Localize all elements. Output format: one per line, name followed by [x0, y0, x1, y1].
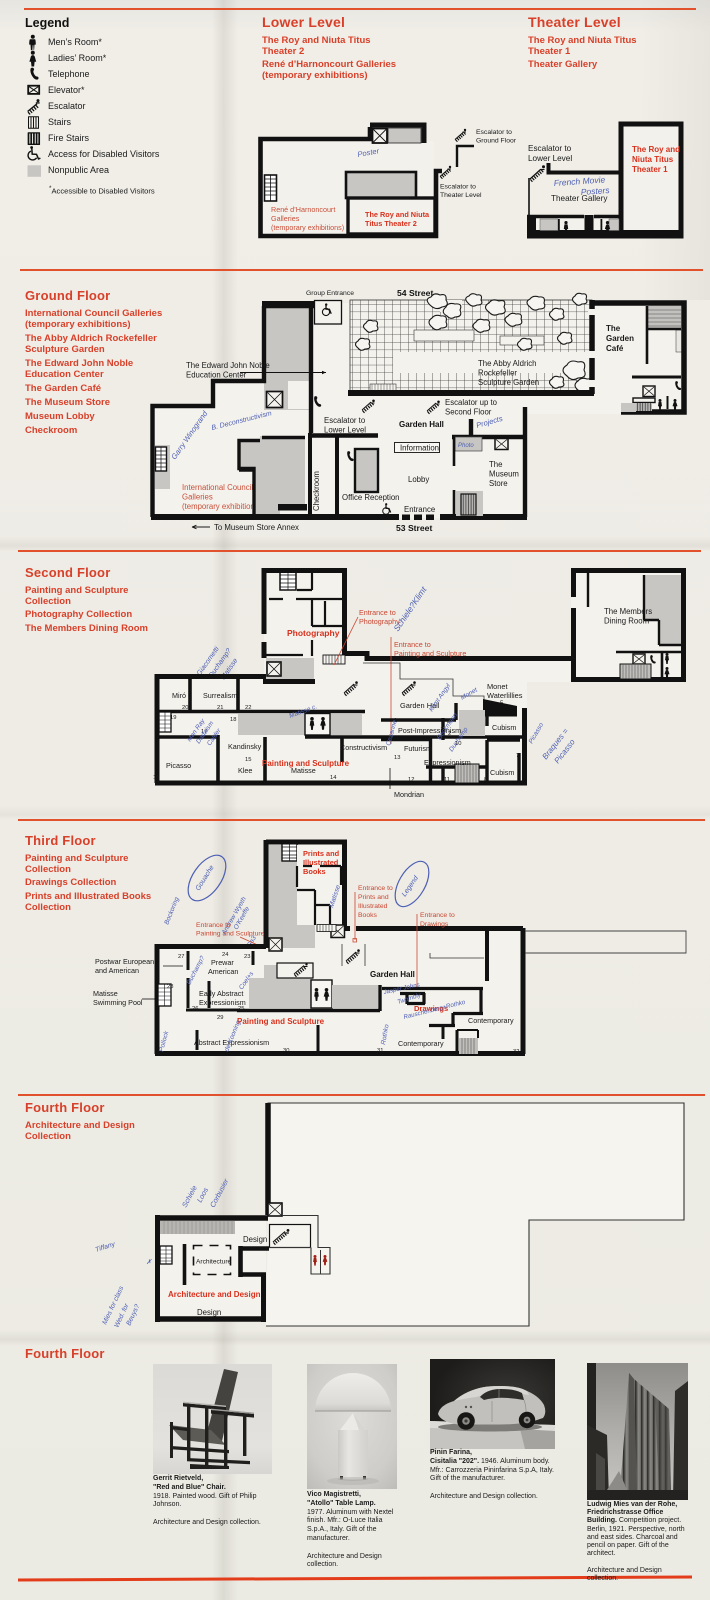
svg-text:Post-Impressionism: Post-Impressionism	[398, 726, 461, 735]
svg-text:Kandinsky: Kandinsky	[228, 742, 262, 751]
svg-text:Lobby: Lobby	[408, 475, 429, 484]
svg-text:Cubism: Cubism	[492, 723, 516, 732]
svg-text:Mondrian: Mondrian	[394, 790, 424, 799]
svg-text:Contemporary: Contemporary	[468, 1016, 514, 1025]
svg-text:23: 23	[244, 954, 250, 960]
svg-text:32: 32	[513, 1049, 519, 1055]
svg-text:Swimming Pool: Swimming Pool	[93, 998, 143, 1007]
svg-text:Rockefeller: Rockefeller	[478, 369, 517, 378]
svg-text:Galleries: Galleries	[271, 214, 300, 223]
svg-text:Books: Books	[303, 867, 326, 876]
svg-text:Escalator to: Escalator to	[528, 144, 572, 153]
svg-text:21: 21	[217, 705, 223, 711]
svg-text:Architecture: Architecture	[196, 1259, 232, 1266]
svg-text:Prints and: Prints and	[358, 894, 389, 901]
svg-text:René d’Harnoncourt: René d’Harnoncourt	[271, 205, 335, 214]
svg-text:International Council: International Council	[182, 483, 253, 492]
svg-text:Picasso: Picasso	[528, 721, 546, 745]
svg-text:24: 24	[222, 952, 229, 958]
svg-text:The Members: The Members	[604, 607, 652, 616]
svg-text:Monet: Monet	[487, 682, 508, 691]
svg-text:(temporary exhibitions): (temporary exhibitions)	[271, 223, 344, 232]
svg-text:15: 15	[245, 757, 251, 763]
svg-text:14: 14	[330, 775, 337, 781]
svg-text:26: 26	[192, 1006, 198, 1012]
svg-text:12: 12	[408, 777, 414, 783]
svg-text:18: 18	[230, 717, 236, 723]
svg-text:Posters: Posters	[580, 185, 610, 197]
svg-text:Group Entrance: Group Entrance	[306, 290, 354, 297]
svg-text:28: 28	[167, 984, 173, 990]
svg-text:Picasso: Picasso	[166, 761, 191, 770]
svg-text:Information: Information	[400, 444, 439, 453]
svg-text:Garden: Garden	[606, 334, 634, 343]
svg-text:25: 25	[238, 1006, 244, 1012]
svg-text:Niuta Titus: Niuta Titus	[632, 155, 674, 164]
svg-text:Museum: Museum	[489, 470, 519, 479]
svg-text:Early Abstract: Early Abstract	[199, 989, 243, 998]
svg-text:Surrealism: Surrealism	[203, 691, 237, 700]
svg-text:Contemporary: Contemporary	[398, 1039, 444, 1048]
svg-text:Painting and Sculpture: Painting and Sculpture	[262, 759, 350, 768]
svg-text:Theater 1: Theater 1	[632, 165, 668, 174]
svg-text:Design: Design	[197, 1308, 221, 1317]
svg-text:Escalator to: Escalator to	[440, 184, 476, 191]
svg-text:Escalator to: Escalator to	[476, 129, 512, 136]
svg-text:Design: Design	[243, 1235, 267, 1244]
svg-text:Galleries: Galleries	[182, 493, 213, 502]
svg-text:Checkroom: Checkroom	[312, 471, 321, 511]
svg-text:Lower Level: Lower Level	[528, 154, 572, 163]
svg-text:Prewar: Prewar	[211, 958, 234, 967]
svg-text:Theater Level: Theater Level	[440, 192, 482, 199]
svg-text:29: 29	[217, 1015, 223, 1021]
svg-text:Books: Books	[358, 912, 377, 919]
svg-text:16: 16	[153, 775, 159, 781]
svg-text:54 Street: 54 Street	[397, 288, 433, 298]
svg-text:Futurism: Futurism	[404, 744, 432, 753]
svg-text:Garden Hall: Garden Hall	[370, 970, 415, 979]
svg-text:8: 8	[484, 777, 487, 783]
svg-text:The: The	[606, 324, 621, 333]
svg-text:Miró: Miró	[172, 691, 186, 700]
svg-text:20: 20	[182, 705, 188, 711]
svg-text:The Abby Aldrich: The Abby Aldrich	[478, 359, 537, 368]
svg-text:2: 2	[448, 731, 451, 737]
svg-text:Entrance to: Entrance to	[420, 912, 455, 919]
svg-text:Second Floor: Second Floor	[445, 408, 492, 417]
svg-text:Entrance to: Entrance to	[359, 608, 396, 617]
svg-text:American: American	[208, 967, 238, 976]
svg-text:Painting and Sculpture: Painting and Sculpture	[394, 649, 466, 658]
svg-text:Painting and Sculpture: Painting and Sculpture	[237, 1017, 325, 1026]
svg-text:Painting and Sculpture: Painting and Sculpture	[196, 931, 265, 938]
svg-text:22: 22	[245, 705, 251, 711]
svg-text:Photography: Photography	[287, 628, 340, 638]
svg-text:Tiffany: Tiffany	[94, 1241, 116, 1254]
svg-text:Bockoring: Bockoring	[163, 896, 180, 926]
svg-text:Illustrated: Illustrated	[303, 858, 339, 867]
svg-text:Entrance to: Entrance to	[358, 885, 393, 892]
svg-text:The Roy and Niuta: The Roy and Niuta	[365, 210, 430, 219]
svg-text:Architecture and Design: Architecture and Design	[168, 1290, 261, 1299]
svg-text:Titus Theater 2: Titus Theater 2	[365, 219, 417, 228]
svg-text:Photo: Photo	[458, 443, 474, 449]
svg-text:27: 27	[178, 954, 184, 960]
svg-text:Cubism: Cubism	[490, 768, 514, 777]
svg-text:Postwar European: Postwar European	[95, 957, 154, 966]
svg-text:The Edward John Noble: The Edward John Noble	[186, 361, 270, 370]
svg-text:To Museum Store Annex: To Museum Store Annex	[214, 523, 299, 532]
svg-text:Gouache: Gouache	[195, 864, 216, 892]
svg-text:Dining Room: Dining Room	[604, 617, 649, 626]
svg-text:Entrance: Entrance	[404, 505, 435, 514]
svg-text:The Roy and: The Roy and	[632, 145, 680, 154]
svg-text:Office Reception: Office Reception	[342, 493, 400, 502]
svg-text:Expressionism: Expressionism	[424, 758, 471, 767]
svg-text:Corbusier: Corbusier	[208, 1177, 231, 1209]
svg-text:and American: and American	[95, 966, 139, 975]
svg-text:Garden Hall: Garden Hall	[399, 420, 444, 429]
svg-text:✗: ✗	[146, 1259, 152, 1266]
svg-text:Café: Café	[606, 344, 624, 353]
svg-text:Prints and: Prints and	[303, 849, 340, 858]
svg-text:Drawings: Drawings	[420, 921, 449, 928]
svg-text:Ground Floor: Ground Floor	[476, 138, 517, 145]
svg-text:Escalator to: Escalator to	[324, 416, 366, 425]
svg-text:7: 7	[516, 753, 519, 759]
svg-text:Legend: Legend	[401, 874, 421, 898]
svg-text:Klee: Klee	[238, 766, 252, 775]
svg-text:31: 31	[377, 1048, 383, 1054]
svg-text:11: 11	[444, 777, 450, 783]
svg-text:Schiele?Klimt: Schiele?Klimt	[391, 584, 428, 633]
svg-text:(temporary exhibitions): (temporary exhibitions)	[182, 502, 262, 511]
svg-text:Constructivism: Constructivism	[340, 743, 387, 752]
svg-text:Education Center: Education Center	[186, 371, 247, 380]
svg-text:Entrance to: Entrance to	[394, 640, 431, 649]
svg-text:Entrance to: Entrance to	[196, 922, 231, 929]
svg-text:Sculpture Garden: Sculpture Garden	[478, 378, 539, 387]
svg-text:Matisse: Matisse	[93, 989, 118, 998]
svg-text:Waterlillies: Waterlillies	[487, 691, 523, 700]
svg-text:The: The	[489, 460, 502, 469]
svg-text:Lower Level: Lower Level	[324, 426, 366, 435]
svg-text:30: 30	[283, 1048, 289, 1054]
svg-text:53 Street: 53 Street	[396, 523, 432, 533]
svg-text:Escalator up to: Escalator up to	[445, 398, 498, 407]
svg-text:13: 13	[394, 755, 400, 761]
svg-text:Illustrated: Illustrated	[358, 903, 388, 910]
svg-text:Store: Store	[489, 479, 508, 488]
